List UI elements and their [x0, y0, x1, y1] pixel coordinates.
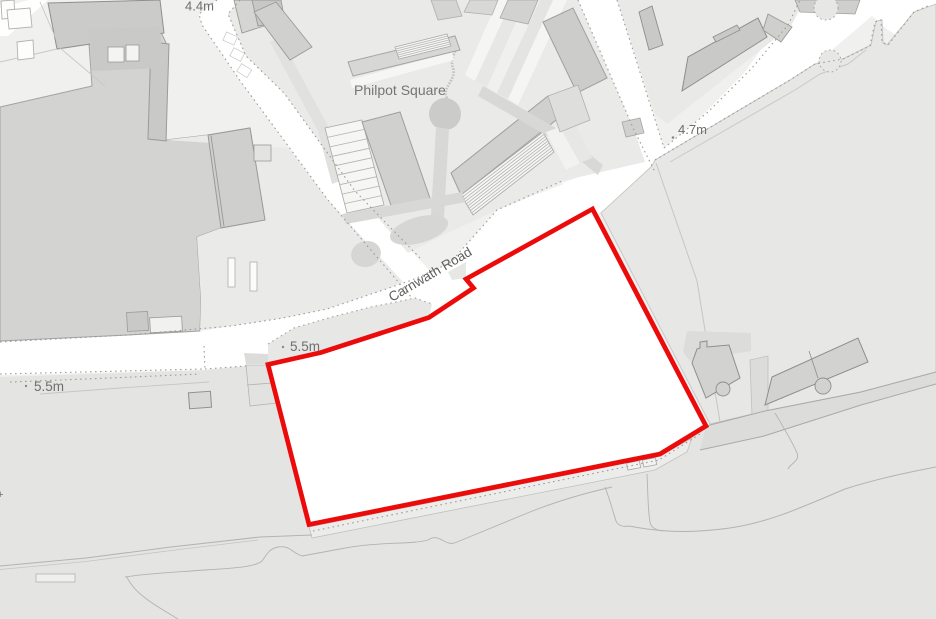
svg-text:4.4m: 4.4m	[185, 0, 214, 14]
svg-text:Philpot Square: Philpot Square	[354, 82, 446, 98]
svg-text:+: +	[0, 489, 3, 501]
svg-text:5.5m: 5.5m	[290, 339, 320, 354]
svg-text:5.5m: 5.5m	[34, 379, 64, 394]
svg-text:4.7m: 4.7m	[678, 122, 707, 137]
